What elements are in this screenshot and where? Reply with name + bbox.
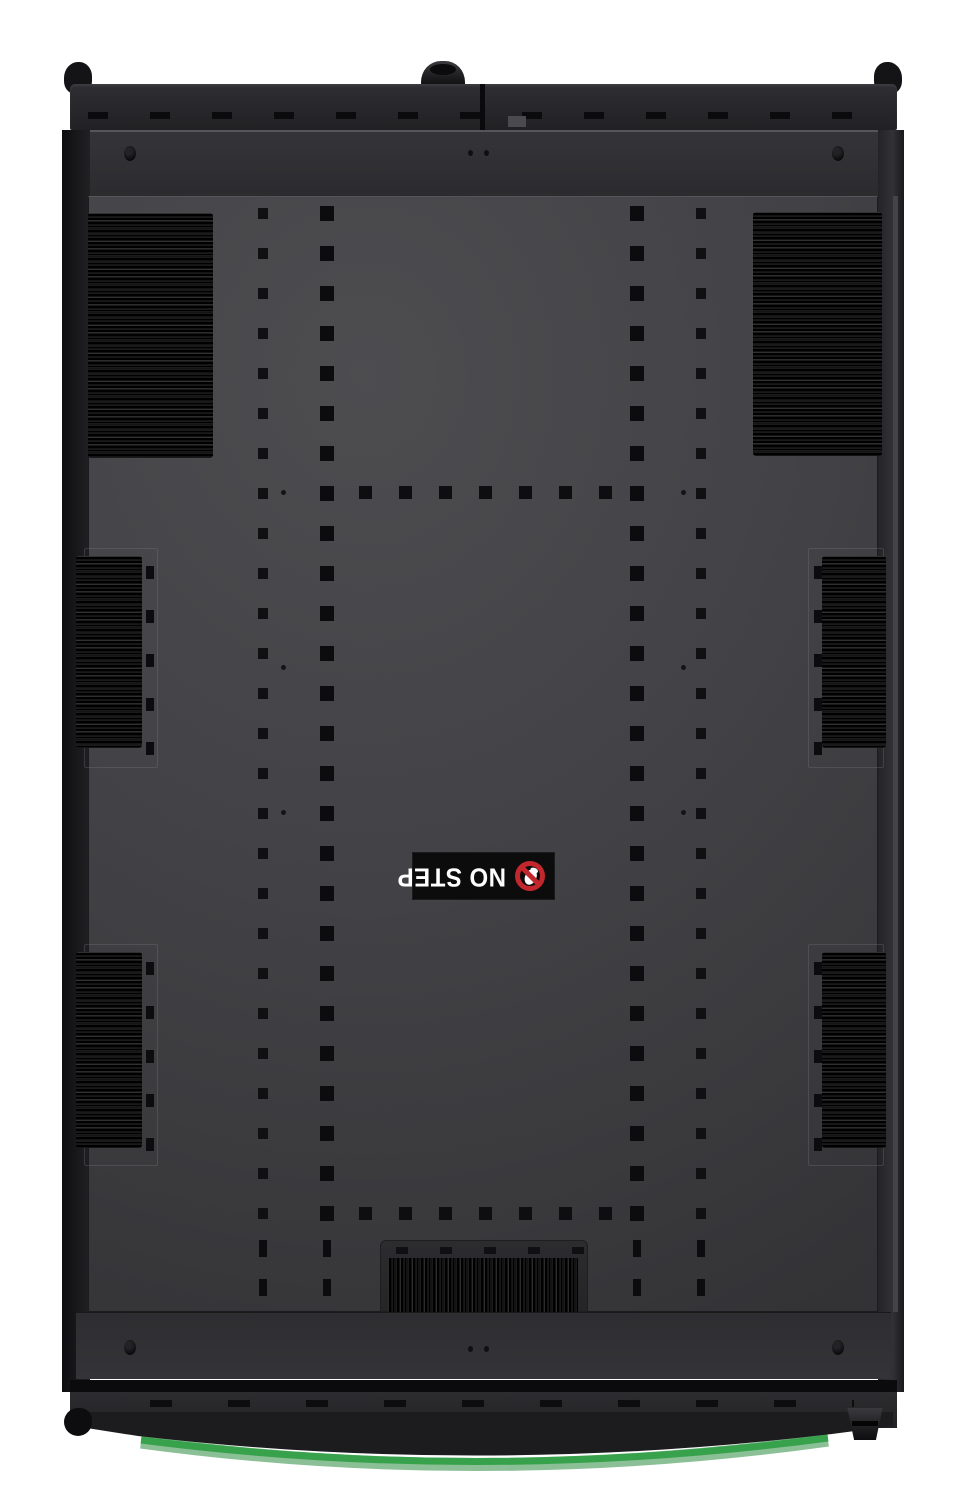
hole-column-outer-left: [258, 208, 268, 1220]
brush-strip-mid-right-lower: [822, 952, 886, 1148]
frame-slots-mid-left-upper: [146, 566, 154, 755]
rack-top-photo: NO STEP: [0, 0, 966, 1501]
left-foot: [64, 1408, 92, 1436]
no-step-label: NO STEP: [413, 853, 554, 899]
brush-strip-mid-left-lower: [76, 952, 142, 1148]
right-rail-highlight: [893, 196, 898, 1312]
hole-column-outer-right: [696, 208, 706, 1220]
top-band-pin-right: [484, 150, 489, 156]
bottom-band-pin-left: [468, 1346, 473, 1352]
frame-slots-bottom-center: [396, 1247, 588, 1254]
pilot-hole: [281, 665, 286, 670]
slot-pair-outer-left: [259, 1240, 267, 1298]
slot-pair-inner-right: [633, 1240, 641, 1298]
top-door-split-seam: [480, 84, 485, 130]
pilot-hole: [281, 810, 286, 815]
top-band-screw-right: [832, 146, 844, 161]
hole-column-inner-right: [630, 206, 644, 1223]
bottom-band-screw-right: [832, 1340, 844, 1355]
brush-strip-top-right: [753, 212, 882, 456]
pilot-hole: [281, 490, 286, 495]
brush-strip-bottom-center: [388, 1258, 578, 1312]
frame-slots-mid-left-lower: [146, 962, 154, 1151]
hole-row-lower: [359, 1207, 612, 1220]
brush-strip-mid-left-upper: [76, 556, 142, 748]
no-step-text: NO STEP: [397, 861, 506, 891]
brush-strip-top-left: [88, 213, 213, 458]
bottom-frame-band: [76, 1312, 891, 1379]
top-door-latch-chip: [508, 116, 526, 127]
pilot-hole: [681, 810, 686, 815]
pilot-hole: [681, 490, 686, 495]
top-band-screw-left: [124, 146, 136, 161]
bottom-door-vent-slots: [150, 1400, 854, 1407]
slot-pair-inner-left: [323, 1240, 331, 1298]
bottom-band-pin-right: [484, 1346, 489, 1352]
curved-door-bottom: [66, 1412, 901, 1484]
slot-pair-outer-right: [697, 1240, 705, 1298]
hole-row-upper: [359, 486, 612, 499]
hole-column-inner-left: [320, 206, 334, 1223]
no-step-prohibition-icon: [515, 861, 545, 891]
pilot-hole: [681, 665, 686, 670]
top-frame-band: [76, 130, 891, 198]
bottom-band-screw-left: [124, 1340, 136, 1355]
frame-slots-mid-right-upper: [814, 566, 822, 755]
frame-slots-mid-right-lower: [814, 962, 822, 1151]
top-band-pin-left: [468, 150, 473, 156]
brush-strip-mid-right-upper: [822, 556, 886, 748]
